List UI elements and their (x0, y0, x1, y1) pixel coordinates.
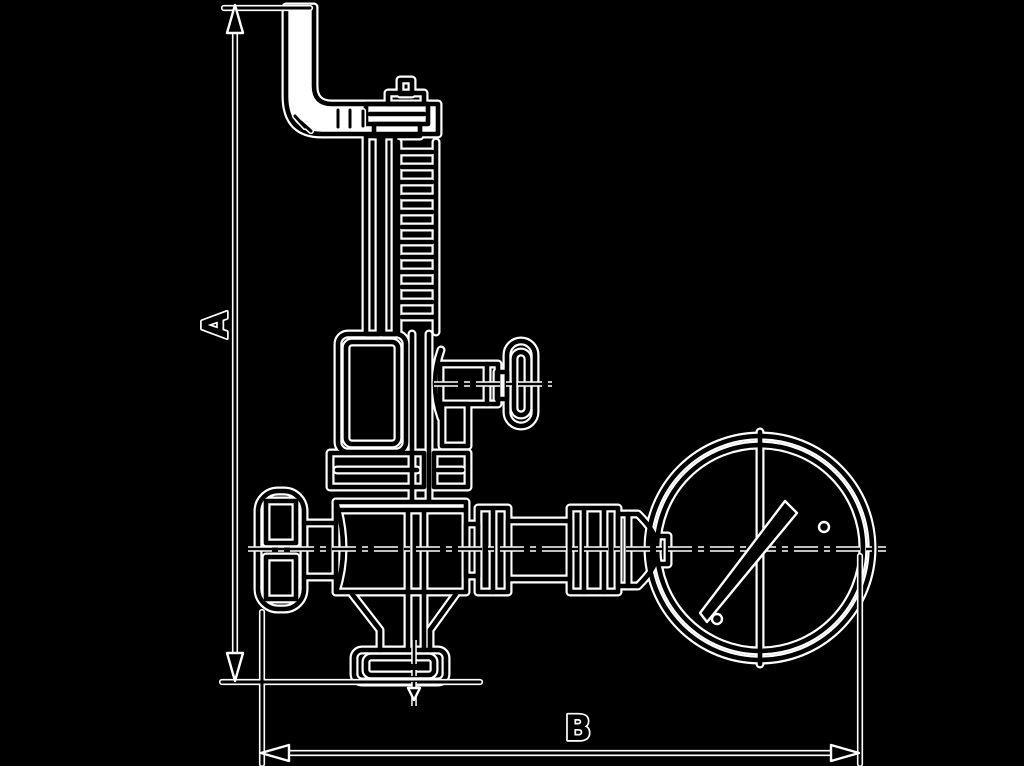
dim-b-arrow-left-icon (261, 745, 289, 761)
outlet-drip-icon (408, 688, 420, 700)
dim-a-arrow-down-icon (227, 653, 243, 681)
gauge-dot-lower (712, 614, 722, 624)
dimension-label-a: A (196, 311, 236, 338)
gauge-needle (700, 501, 797, 622)
valve-dimensional-drawing: A B (0, 0, 1024, 766)
dimension-label-b: B (565, 709, 592, 749)
dim-b-arrow-right-icon (831, 745, 859, 761)
drawing-canvas: A B (0, 0, 1024, 766)
gauge-dot-right (819, 522, 829, 532)
